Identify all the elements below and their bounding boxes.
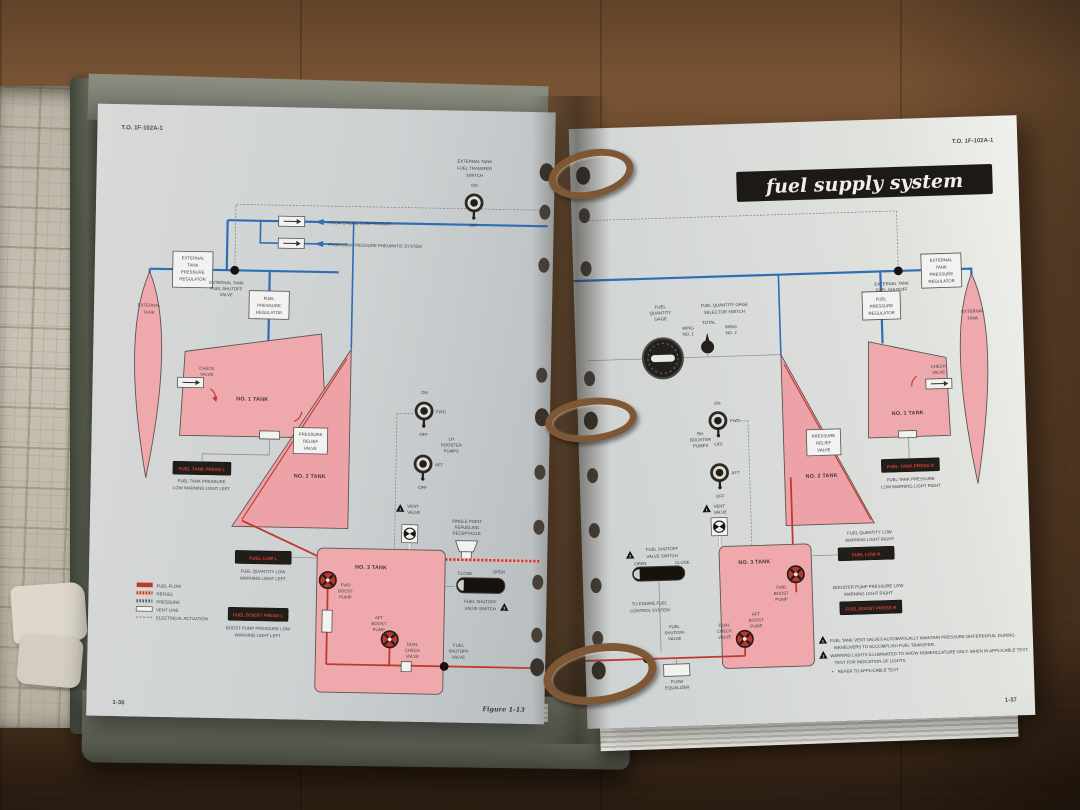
vent-valve-icon	[711, 517, 728, 535]
off-label: OFF	[714, 441, 723, 446]
notes-block: 1 FUEL TANK VENT VALVES AUTOMATICALLY MA…	[819, 629, 1029, 674]
dual-check-valve-label: DUAL CHECK VALVE	[717, 622, 733, 639]
valve-position-indicator	[632, 566, 684, 582]
no2-tank-label: NO. 2 TANK	[294, 473, 326, 480]
svg-text:CHECK: CHECK	[405, 648, 420, 653]
svg-text:SELECTOR SWITCH: SELECTOR SWITCH	[704, 309, 745, 315]
fuel-pressure-regulator: FUEL PRESSURE REGULATOR	[249, 291, 290, 320]
svg-text:FUEL: FUEL	[453, 643, 465, 648]
svg-text:PUMP: PUMP	[373, 627, 386, 632]
svg-text:PUMP: PUMP	[339, 594, 352, 599]
svg-text:VALVE SWITCH: VALVE SWITCH	[465, 606, 496, 612]
page-number-right: 1-37	[1005, 697, 1018, 703]
svg-text:VALVE: VALVE	[452, 655, 465, 660]
svg-text:WARNING LIGHT LEFT: WARNING LIGHT LEFT	[235, 632, 282, 638]
no3-tank-label: NO. 3 TANK	[355, 565, 387, 572]
on-label: ON	[714, 401, 721, 406]
fuel-tank-press-warning-light: FUEL TANK PRESS R FUEL TANK PRESSURE LOW…	[880, 458, 941, 490]
svg-text:AFT: AFT	[752, 611, 761, 616]
svg-text:FUEL QUANTITY LOW: FUEL QUANTITY LOW	[241, 568, 287, 574]
svg-text:TEST FOR INDICATION OF LIGHTS.: TEST FOR INDICATION OF LIGHTS.	[834, 658, 906, 665]
svg-text:CONTROL SYSTEM: CONTROL SYSTEM	[630, 607, 670, 613]
svg-text:FWD: FWD	[776, 585, 786, 590]
svg-text:2: 2	[503, 607, 505, 611]
fuel-tank-press-warning-light: FUEL TANK PRESS L FUEL TANK PRESSURE LOW…	[173, 461, 232, 491]
off-label: OFF	[469, 223, 478, 228]
pneumatic-line	[573, 269, 973, 353]
connector-line	[588, 355, 781, 361]
dual-check-valve-icon	[401, 662, 411, 672]
to-engine-label: TO ENGINE FUEL CONTROL SYSTEM	[630, 600, 670, 613]
no2-tank-label: NO. 2 TANK	[806, 473, 838, 480]
check-valve-symbol	[177, 377, 203, 387]
fwd-booster-switch-icon	[416, 403, 432, 428]
svg-text:PRESSURE: PRESSURE	[181, 269, 205, 274]
svg-text:PRESSURE: PRESSURE	[930, 271, 954, 277]
dual-check-valve-label: DUAL CHECK VALVE	[405, 642, 420, 659]
legend-item: REFUEL	[156, 591, 174, 596]
svg-text:VALVE: VALVE	[817, 447, 830, 452]
svg-text:PUMPS: PUMPS	[444, 448, 460, 453]
svg-text:VALVE: VALVE	[200, 372, 213, 377]
legend-item: FUEL FLOW	[157, 583, 182, 588]
aft-booster-switch-icon	[711, 464, 728, 489]
no1-tank-label: NO. 1 TANK	[236, 396, 268, 403]
svg-text:RELIEF: RELIEF	[816, 440, 832, 445]
svg-text:FUEL TANK PRESS L: FUEL TANK PRESS L	[179, 466, 226, 472]
svg-text:FUEL TRANSFER: FUEL TRANSFER	[457, 166, 492, 172]
external-tank-pressure-regulator: EXTERNAL TANK PRESSURE REGULATOR	[172, 251, 213, 288]
fuel-diagram-right: T.O. 1F-102A-1 fuel supply system FUEL Q…	[569, 115, 1036, 729]
vent-segment	[322, 610, 332, 632]
close-label: CLOSE	[675, 560, 690, 565]
svg-text:SHUTOFF: SHUTOFF	[448, 648, 469, 653]
rh-booster-pumps-switches: RH BOOSTER PUMPS ON FWD OFF AFT OFF	[689, 400, 742, 500]
fuel-low-warning-light: FUEL LOW L FUEL QUANTITY LOW WARNING LIG…	[235, 550, 292, 581]
off-label: OFF	[418, 485, 427, 490]
pressure-relief-valve: PRESSURE RELIEF VALVE	[293, 427, 327, 454]
legend-item: VENT LINE	[156, 607, 178, 612]
page-header-left: T.O. 1F-102A-1	[121, 125, 163, 132]
aft-boost-pump-icon	[381, 631, 398, 648]
svg-text:EXTERNAL: EXTERNAL	[930, 257, 953, 263]
svg-text:REFER TO APPLICABLE TEXT: REFER TO APPLICABLE TEXT	[838, 667, 899, 674]
tank-sump	[898, 430, 916, 438]
fwd-boost-pump-icon	[787, 566, 804, 583]
svg-text:WARNING LIGHT RIGHT: WARNING LIGHT RIGHT	[844, 590, 893, 597]
svg-text:TO ENGINE FUEL: TO ENGINE FUEL	[632, 600, 668, 606]
aft-label: AFT	[435, 462, 444, 467]
svg-text:FUEL SHUTOFF: FUEL SHUTOFF	[464, 599, 497, 605]
svg-text:PRESSURE: PRESSURE	[257, 303, 281, 308]
svg-text:VALVE: VALVE	[932, 369, 945, 374]
svg-text:FUEL: FUEL	[264, 296, 276, 301]
from-engine-compressor-label: FROM ENGINE COMPRESSOR	[329, 220, 392, 226]
svg-text:NO. 2: NO. 2	[725, 330, 737, 335]
fuel-low-warning-light: FUEL QUANTITY LOW WARNING LIGHT RIGHT FU…	[837, 529, 895, 561]
svg-text:VALVE: VALVE	[714, 509, 727, 514]
connector-line	[659, 582, 661, 652]
vent-valve: 1 VENT VALVE	[395, 503, 420, 551]
svg-text:PUMP: PUMP	[775, 597, 788, 602]
svg-text:SINGLE POINT: SINGLE POINT	[452, 519, 483, 525]
svg-text:BOOSTER PUMP PRESSURE LOW: BOOSTER PUMP PRESSURE LOW	[833, 583, 904, 590]
receptacle-funnel-icon	[455, 541, 477, 552]
svg-text:WING: WING	[682, 325, 695, 330]
single-point-refueling-receptacle: SINGLE POINT REFUELING RECEPTACLE	[451, 519, 482, 561]
paper-scrap	[16, 633, 84, 688]
pneumatic-line	[351, 223, 353, 349]
svg-text:VALVE: VALVE	[407, 510, 420, 515]
flow-arrow	[315, 219, 324, 225]
lh-booster-pumps-switches: ON FWD OFF LH BOOSTER PUMPS AFT OFF	[415, 390, 463, 491]
svg-text:PRESSURE: PRESSURE	[812, 433, 836, 439]
svg-text:SWITCH: SWITCH	[466, 173, 483, 178]
vent-valve: 1 VENT VALVE	[702, 503, 728, 547]
external-tank-fuel-transfer-switch: EXTERNAL TANK FUEL TRANSFER SWITCH ON OF…	[456, 159, 492, 229]
on-label: ON	[421, 390, 428, 395]
svg-text:FUEL BOOST PRESS L: FUEL BOOST PRESS L	[233, 612, 284, 618]
svg-text:CHECK: CHECK	[717, 628, 732, 633]
svg-text:VENT: VENT	[407, 504, 419, 509]
svg-text:RELIEF: RELIEF	[303, 439, 319, 444]
svg-text:PRESSURE: PRESSURE	[870, 303, 894, 309]
svg-text:REGULATOR: REGULATOR	[256, 310, 282, 316]
page-header-right: T.O. 1F-102A-1	[952, 138, 994, 145]
open-label: OPEN	[634, 561, 646, 566]
svg-text:DUAL: DUAL	[719, 622, 731, 627]
svg-text:FUEL TANK PRESSURE: FUEL TANK PRESSURE	[178, 478, 226, 484]
svg-text:VALVE: VALVE	[304, 446, 317, 451]
connector-line	[909, 437, 910, 459]
total-position-label: TOTAL	[702, 320, 716, 325]
from-pneumatic-label: FROM LOW-PRESSURE PNEUMATIC SYSTEM	[328, 242, 422, 249]
svg-text:BOOSTER: BOOSTER	[690, 437, 711, 443]
svg-text:EXTERNAL: EXTERNAL	[138, 302, 161, 307]
open-label: OPEN	[493, 569, 505, 574]
fuel-shutoff-valve-switch: 2 FUEL SHUTOFF VALVE SWITCH OPEN CLOSE	[626, 546, 691, 582]
svg-text:1: 1	[822, 639, 824, 643]
svg-text:AFT: AFT	[375, 615, 384, 620]
svg-text:EXTERNAL: EXTERNAL	[182, 255, 205, 260]
pressure-relief-valve: PRESSURE RELIEF VALVE	[806, 429, 841, 456]
boost-pump-press-warning-light: BOOSTER PUMP PRESSURE LOW WARNING LIGHT …	[833, 583, 905, 615]
svg-text:WING: WING	[725, 324, 738, 329]
svg-text:GAGE: GAGE	[654, 316, 667, 321]
fuel-pressure-regulator: FUEL PRESSURE REGULATOR	[862, 291, 901, 320]
fuel-diagram-left: T.O. 1F-102A-1 EXTERNAL TANK FROM ENGINE…	[86, 104, 556, 725]
svg-text:EQUALIZER: EQUALIZER	[665, 685, 690, 691]
no1-tank-label: NO. 1 TANK	[892, 410, 924, 417]
svg-text:WARNING LIGHT RIGHT: WARNING LIGHT RIGHT	[845, 536, 894, 543]
connector-line	[812, 555, 838, 556]
fuel-quantity-gage: FUEL QUANTITY GAGE	[641, 304, 683, 379]
fwd-label: FWD	[436, 409, 446, 414]
pneumatic-line	[778, 275, 781, 355]
external-tank-fuel-shutoff-valve-icon	[230, 266, 239, 275]
flow-arrow	[314, 241, 323, 247]
svg-text:BOOST PUMP PRESSURE LOW: BOOST PUMP PRESSURE LOW	[226, 625, 291, 631]
svg-text:EXTERNAL TANK: EXTERNAL TANK	[209, 280, 244, 286]
svg-text:PUMPS: PUMPS	[693, 443, 709, 448]
legend: FUEL FLOW REFUEL PRESSURE VENT LINE ELEC…	[136, 582, 209, 621]
svg-text:PRESSURE: PRESSURE	[299, 432, 323, 437]
svg-text:LOW WARNING LIGHT LEFT: LOW WARNING LIGHT LEFT	[173, 485, 231, 491]
toggle-switch-icon	[466, 195, 482, 220]
svg-text:VENT: VENT	[714, 503, 726, 508]
svg-text:MANEUVERS TO ACCOMPLISH FUEL T: MANEUVERS TO ACCOMPLISH FUEL TRANSFER.	[834, 642, 935, 650]
svg-text:FUEL: FUEL	[876, 296, 888, 301]
svg-text:2: 2	[822, 654, 824, 658]
svg-text:FLOW: FLOW	[671, 679, 685, 684]
check-valve-symbol	[279, 216, 305, 226]
svg-text:LH: LH	[449, 436, 455, 441]
svg-text:2: 2	[629, 554, 631, 558]
external-tank-fuel-shutoff-valve-icon	[894, 266, 903, 275]
aft-booster-switch-icon	[415, 456, 431, 481]
svg-text:FUEL SHUTOFF: FUEL SHUTOFF	[210, 286, 243, 292]
svg-text:DUAL: DUAL	[407, 642, 419, 647]
fwd-boost-pump-icon	[319, 572, 336, 589]
page-number-left: 1-36	[112, 700, 125, 706]
svg-text:WARNING LIGHT LEFT: WARNING LIGHT LEFT	[240, 575, 287, 581]
off-label: OFF	[716, 493, 725, 498]
svg-text:FUEL QUANTITY LOW: FUEL QUANTITY LOW	[847, 529, 893, 535]
svg-text:BOOST: BOOST	[371, 621, 387, 626]
svg-text:FUEL TANK PRESSURE: FUEL TANK PRESSURE	[887, 476, 935, 483]
close-label: CLOSE	[458, 571, 473, 576]
off-label: OFF	[419, 432, 428, 437]
svg-text:BOOST: BOOST	[338, 588, 354, 593]
svg-text:BOOSTER: BOOSTER	[441, 442, 462, 447]
svg-text:FWD: FWD	[341, 582, 351, 587]
svg-text:1: 1	[706, 508, 708, 512]
check-valve-symbol	[278, 238, 304, 248]
svg-text:FUEL LOW L: FUEL LOW L	[249, 556, 277, 562]
svg-text:VALVE: VALVE	[668, 636, 681, 641]
svg-text:VALVE: VALVE	[220, 292, 233, 297]
external-tank-fuel-shutoff-valve-label: EXTERNAL TANK FUEL SHUTOFF VALVE	[209, 280, 244, 298]
svg-text:EXTERNAL: EXTERNAL	[961, 308, 984, 314]
fwd-label: FWD	[730, 418, 740, 423]
external-tank-shape	[958, 273, 992, 484]
svg-text:LOW WARNING LIGHT RIGHT: LOW WARNING LIGHT RIGHT	[881, 483, 941, 490]
fuel-quantity-gage-selector-switch: FUEL QUANTITY GAGE SELECTOR SWITCH TOTAL…	[681, 302, 749, 358]
svg-text:REGULATOR: REGULATOR	[868, 310, 894, 316]
svg-text:REFUELING: REFUELING	[455, 525, 480, 530]
no3-tank-label: NO. 3 TANK	[738, 559, 770, 566]
svg-text:1: 1	[399, 508, 401, 512]
aft-boost-pump-icon	[736, 630, 753, 647]
svg-text:FUEL LOW R: FUEL LOW R	[852, 552, 881, 558]
tank-sump	[260, 431, 280, 439]
legend-item: ELECTRICAL ACTUATION	[156, 615, 208, 621]
manual-page-left: T.O. 1F-102A-1 EXTERNAL TANK FROM ENGINE…	[86, 104, 556, 725]
aft-label: AFT	[731, 470, 740, 475]
vent-valve-icon	[402, 525, 418, 543]
svg-text:VALVE SWITCH: VALVE SWITCH	[646, 553, 678, 559]
check-valve-label: CHECK	[931, 363, 946, 368]
fwd-booster-switch-icon	[710, 412, 727, 437]
svg-text:RH: RH	[697, 431, 703, 436]
svg-text:TANK: TANK	[143, 310, 154, 315]
electrical-actuation-line	[582, 211, 899, 281]
section-banner: fuel supply system	[736, 164, 993, 202]
svg-text:TANK: TANK	[936, 264, 947, 269]
svg-text:TANK: TANK	[187, 262, 198, 267]
check-valve-label: CHECK	[199, 366, 214, 371]
flow-equalizer: FLOW EQUALIZER	[663, 658, 690, 691]
connector-line	[202, 438, 269, 463]
svg-text:FUEL SHUTOFF: FUEL SHUTOFF	[646, 546, 679, 552]
svg-text:NO. 1: NO. 1	[682, 331, 694, 336]
svg-text:SHUTOFF: SHUTOFF	[664, 630, 685, 636]
svg-text:BOOST: BOOST	[774, 590, 790, 595]
svg-text:RECEPTACLE: RECEPTACLE	[453, 531, 482, 537]
selector-knob-icon	[701, 340, 714, 353]
svg-text:BOOST: BOOST	[749, 617, 765, 622]
svg-text:REGULATOR: REGULATOR	[179, 276, 205, 282]
boost-pump-press-warning-light: FUEL BOOST PRESS L BOOST PUMP PRESSURE L…	[226, 607, 292, 638]
svg-text:VALVE: VALVE	[406, 654, 419, 659]
figure-caption: Figure 1-13	[481, 705, 525, 714]
svg-text:FUEL QUANTITY GAGE: FUEL QUANTITY GAGE	[701, 302, 749, 308]
bullet: •	[832, 669, 834, 674]
svg-text:PUMP: PUMP	[750, 623, 763, 628]
svg-text:REGULATOR: REGULATOR	[928, 278, 954, 284]
fuel-shutoff-valve-switch: CLOSE OPEN FUEL SHUTOFF VALVE SWITCH 2	[456, 569, 509, 612]
legend-item: PRESSURE	[156, 599, 180, 604]
svg-text:QUANTITY: QUANTITY	[650, 310, 672, 316]
external-tank-pressure-regulator: EXTERNAL TANK PRESSURE REGULATOR	[921, 253, 962, 288]
on-label: ON	[471, 183, 478, 188]
manual-page-right: T.O. 1F-102A-1 fuel supply system FUEL Q…	[569, 115, 1036, 729]
svg-text:TANK: TANK	[967, 315, 978, 320]
check-valve-symbol	[926, 378, 952, 389]
svg-text:FUEL: FUEL	[669, 624, 681, 629]
svg-text:EXTERNAL TANK: EXTERNAL TANK	[457, 159, 492, 165]
svg-text:VALVE: VALVE	[718, 634, 731, 639]
svg-text:FUEL: FUEL	[655, 304, 667, 309]
